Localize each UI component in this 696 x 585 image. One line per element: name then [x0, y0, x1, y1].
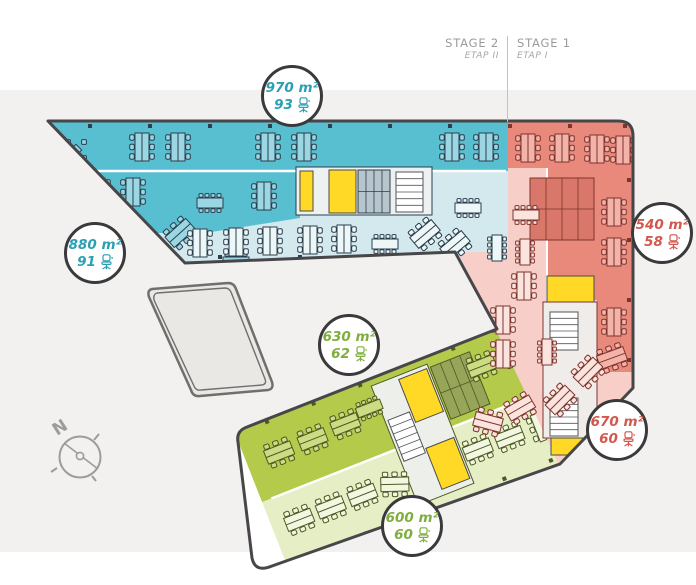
- badge-desk-count: 91: [77, 254, 113, 270]
- area-badge-880: 880 m² 91: [64, 222, 126, 284]
- badge-desk-count: 62: [331, 346, 367, 362]
- office-chair-icon: [417, 527, 430, 543]
- stage-divider-line: [507, 36, 508, 122]
- badge-desk-count: 60: [599, 431, 635, 447]
- badge-desk-count: 58: [644, 234, 680, 250]
- stage1-label: STAGE 1 ETAP I: [517, 37, 617, 62]
- office-chair-icon: [622, 431, 635, 447]
- stage1-subtitle: ETAP I: [517, 50, 617, 62]
- badge-desk-count: 60: [394, 527, 430, 543]
- office-chair-icon: [667, 234, 680, 250]
- badge-area-value: 880 m²: [69, 237, 122, 253]
- office-chair-icon: [100, 254, 113, 270]
- stage2-title: STAGE 2: [399, 37, 499, 50]
- office-chair-icon: [354, 346, 367, 362]
- area-badge-630: 630 m² 62: [318, 314, 380, 376]
- stage2-label: STAGE 2 ETAP II: [399, 37, 499, 62]
- badge-area-value: 630 m²: [323, 329, 376, 345]
- badge-area-value: 670 m²: [591, 414, 644, 430]
- area-badge-670: 670 m² 60: [586, 399, 648, 461]
- stage1-title: STAGE 1: [517, 37, 617, 50]
- area-badge-600: 600 m² 60: [381, 495, 443, 557]
- floor-plan: N: [0, 0, 696, 585]
- badge-area-value: 540 m²: [636, 217, 689, 233]
- badge-area-value: 970 m²: [266, 80, 319, 96]
- office-chair-icon: [297, 97, 310, 113]
- area-badge-970: 970 m² 93: [261, 65, 323, 127]
- area-badge-540: 540 m² 58: [631, 202, 693, 264]
- stage2-subtitle: ETAP II: [399, 50, 499, 62]
- badge-desk-count: 93: [274, 97, 310, 113]
- badge-area-value: 600 m²: [386, 510, 439, 526]
- floorplan-page: { "header": { "stage2": { "title": "STAG…: [0, 0, 696, 585]
